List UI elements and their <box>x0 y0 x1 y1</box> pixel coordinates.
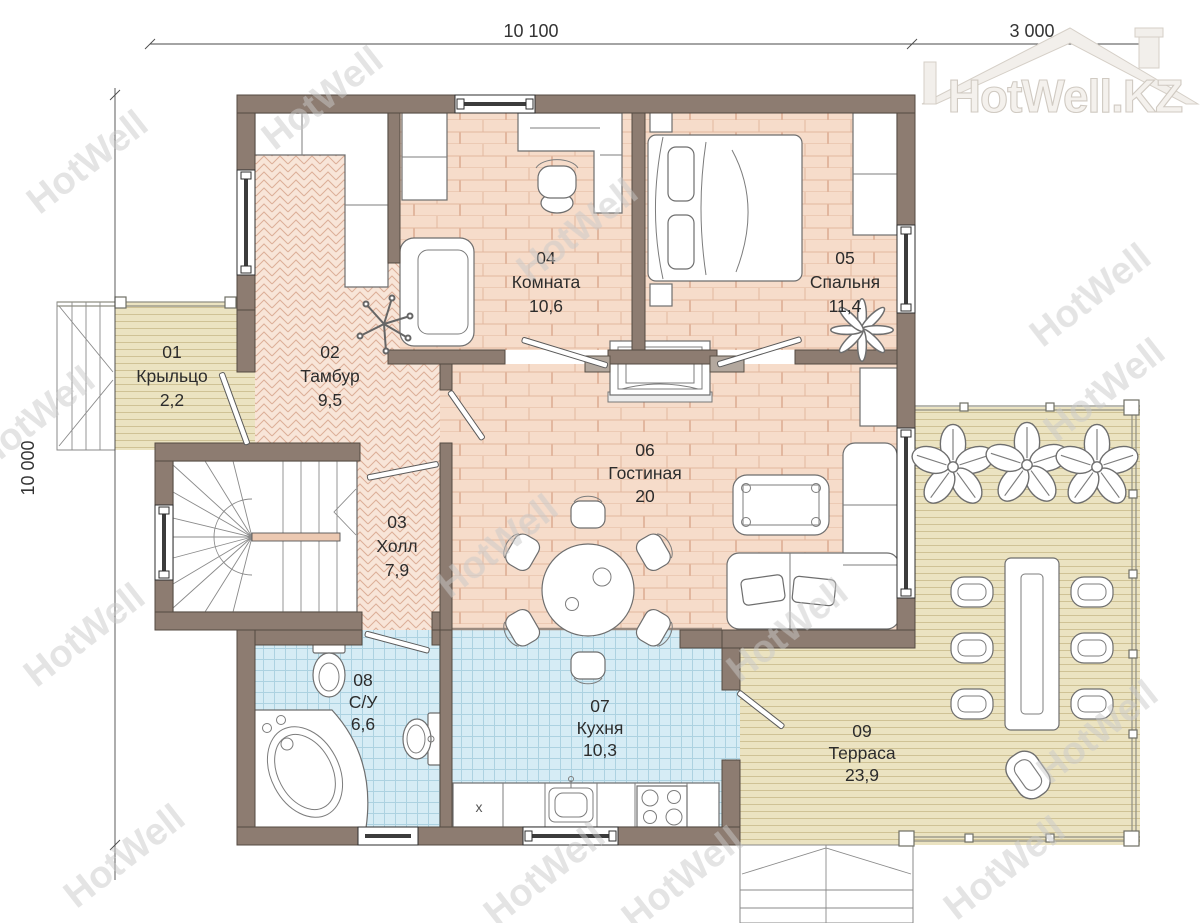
svg-text:Спальня: Спальня <box>810 272 880 292</box>
dining-table <box>542 544 634 636</box>
bed <box>648 110 802 306</box>
staircase <box>173 461 357 612</box>
svg-text:9,5: 9,5 <box>318 390 342 410</box>
svg-text:02: 02 <box>320 342 339 362</box>
svg-text:20: 20 <box>635 486 655 506</box>
porch-railing <box>57 297 237 308</box>
window <box>897 225 915 313</box>
svg-text:03: 03 <box>387 512 406 532</box>
watermark-text: HotWell <box>16 576 153 696</box>
svg-text:23,9: 23,9 <box>845 765 879 785</box>
svg-text:Холл: Холл <box>376 536 417 556</box>
toilet <box>313 640 345 697</box>
terrace-steps <box>740 845 913 923</box>
sofa <box>400 238 474 346</box>
svg-text:Крыльцо: Крыльцо <box>136 366 207 386</box>
floor-plan-canvas: x <box>0 0 1200 923</box>
svg-text:С/У: С/У <box>349 692 379 712</box>
svg-text:Терраса: Терраса <box>828 743 895 763</box>
svg-text:7,9: 7,9 <box>385 560 409 580</box>
svg-text:2,2: 2,2 <box>160 390 184 410</box>
svg-text:10,3: 10,3 <box>583 740 617 760</box>
svg-text:HotWell.KZ: HotWell.KZ <box>948 70 1182 122</box>
coffee-table <box>733 475 829 535</box>
svg-text:3 000: 3 000 <box>1009 21 1054 41</box>
dimension-terrace-width: 3 000 <box>912 21 1157 49</box>
window <box>155 505 173 580</box>
svg-text:09: 09 <box>852 721 871 741</box>
svg-text:10 100: 10 100 <box>503 21 558 41</box>
terrace-door-threshold <box>722 690 740 760</box>
svg-text:06: 06 <box>635 440 654 460</box>
dimension-top-width: 10 100 <box>145 21 917 49</box>
watermark-text: HotWell <box>19 103 156 223</box>
stove <box>637 786 687 827</box>
fridge: x <box>476 799 483 815</box>
svg-text:6,6: 6,6 <box>351 714 375 734</box>
svg-text:Тамбур: Тамбур <box>300 366 359 386</box>
svg-text:05: 05 <box>835 248 854 268</box>
room-03-floor <box>362 612 432 632</box>
hotwell-logo: HotWell.KZ <box>922 28 1198 122</box>
svg-text:11,4: 11,4 <box>829 296 862 316</box>
window <box>455 95 535 113</box>
watermark-text: HotWell <box>56 797 193 917</box>
window <box>358 827 418 845</box>
svg-text:07: 07 <box>590 696 609 716</box>
dresser <box>860 368 897 426</box>
window <box>237 170 255 275</box>
svg-text:08: 08 <box>353 670 372 690</box>
svg-text:01: 01 <box>162 342 181 362</box>
room-06-floor <box>440 390 452 443</box>
terrace-table <box>1005 558 1059 730</box>
svg-text:Кухня: Кухня <box>577 718 624 738</box>
room-02-floor <box>388 364 440 461</box>
svg-text:10,6: 10,6 <box>529 296 563 316</box>
room-02-floor <box>255 155 345 461</box>
svg-text:Гостиная: Гостиная <box>608 463 681 483</box>
